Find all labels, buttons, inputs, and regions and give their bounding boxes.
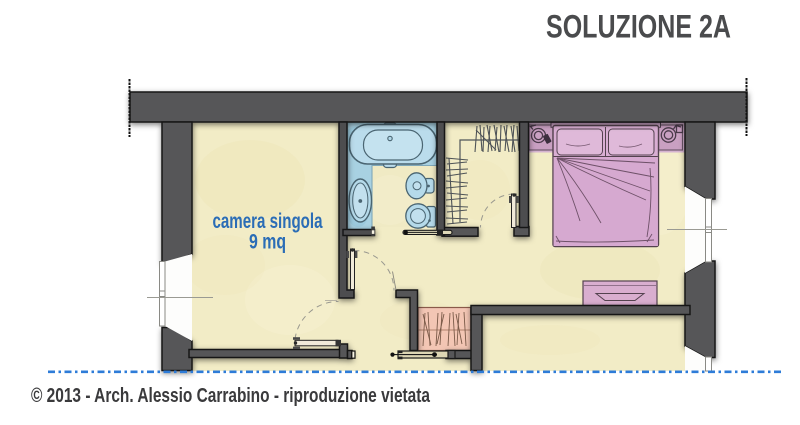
svg-text:© 2013 - Arch. Alessio Carrabi: © 2013 - Arch. Alessio Carrabino - ripro… (31, 384, 430, 407)
svg-text:camera singola: camera singola (213, 210, 323, 233)
svg-text:SOLUZIONE 2A: SOLUZIONE 2A (546, 9, 731, 45)
svg-text:9 mq: 9 mq (249, 231, 286, 254)
